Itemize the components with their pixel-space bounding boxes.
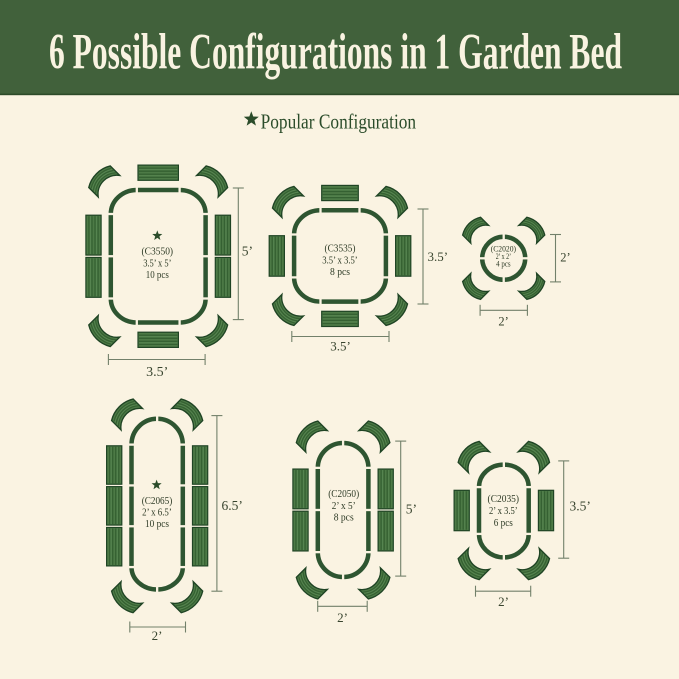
svg-text:3.5’ x 3.5’: 3.5’ x 3.5’ [322, 254, 357, 266]
svg-text:10 pcs: 10 pcs [146, 269, 169, 281]
svg-text:6.5’: 6.5’ [222, 498, 243, 513]
svg-text:2’: 2’ [560, 251, 570, 265]
svg-text:(C3550): (C3550) [142, 245, 174, 257]
svg-text:8 pcs: 8 pcs [330, 266, 350, 278]
svg-text:4 pcs: 4 pcs [496, 258, 511, 268]
svg-text:8 pcs: 8 pcs [334, 512, 354, 524]
svg-text:3.5’ x 5’: 3.5’ x 5’ [143, 257, 171, 269]
svg-text:(C2050): (C2050) [328, 488, 359, 500]
svg-text:2’ x 5’: 2’ x 5’ [332, 500, 356, 512]
svg-text:5’: 5’ [242, 244, 253, 259]
svg-text:(C2035): (C2035) [488, 493, 520, 505]
svg-text:2’ x 6.5’: 2’ x 6.5’ [142, 506, 172, 518]
svg-text:2’: 2’ [498, 594, 509, 609]
svg-text:2’: 2’ [337, 610, 348, 625]
svg-text:3.5’: 3.5’ [428, 249, 449, 264]
svg-text:3.5’: 3.5’ [570, 498, 591, 513]
svg-text:2’: 2’ [152, 628, 163, 643]
svg-text:6 pcs: 6 pcs [494, 517, 513, 529]
svg-text:(C2065): (C2065) [142, 495, 173, 507]
svg-text:(C3535): (C3535) [325, 243, 356, 255]
svg-text:5’: 5’ [406, 502, 417, 517]
svg-text:2’: 2’ [498, 315, 508, 329]
svg-text:3.5’: 3.5’ [330, 339, 351, 354]
svg-text:6 Possible Configurations in 1: 6 Possible Configurations in 1 Garden Be… [49, 24, 622, 80]
svg-text:10 pcs: 10 pcs [145, 518, 169, 530]
svg-text:Popular Configuration: Popular Configuration [261, 110, 417, 134]
svg-text:3.5’: 3.5’ [146, 365, 168, 380]
svg-text:2’ x 3.5’: 2’ x 3.5’ [489, 505, 518, 517]
